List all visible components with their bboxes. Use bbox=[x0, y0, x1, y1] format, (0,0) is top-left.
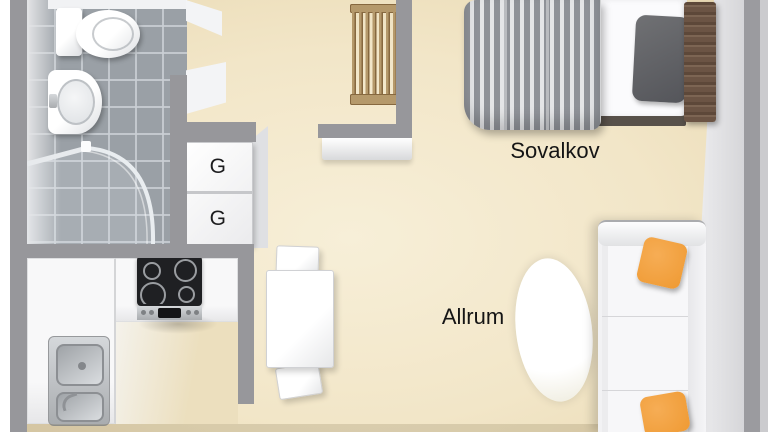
sink-drain bbox=[78, 362, 86, 370]
wardrobe-upper-label: G bbox=[210, 155, 227, 179]
alcove-wall-vertical bbox=[396, 0, 412, 138]
burner-top-right bbox=[174, 259, 197, 282]
sofa-cushion-bottom bbox=[639, 390, 691, 432]
sink-bowl-upper bbox=[56, 344, 104, 386]
kitchen-sink-unit bbox=[48, 336, 110, 426]
sofa-backrest bbox=[688, 244, 706, 432]
oven-front bbox=[137, 306, 202, 320]
bathroom-right-wall bbox=[170, 75, 187, 246]
sleeping-alcove-label: Sovalkov bbox=[495, 138, 615, 164]
sofa-seat-seam bbox=[602, 316, 688, 317]
cooktop bbox=[137, 256, 202, 306]
wardrobe-cabinets: G G bbox=[183, 142, 253, 246]
oven-display bbox=[158, 308, 181, 318]
wardrobe-top-wall bbox=[172, 122, 256, 142]
wardrobe-upper: G bbox=[184, 143, 252, 194]
floorplan-canvas: G G Sovalkov Allrum bbox=[0, 0, 768, 432]
slat-rack-bottom-rail bbox=[350, 94, 399, 105]
burner-bottom-right bbox=[178, 286, 195, 303]
burner-bottom-left bbox=[140, 282, 166, 308]
alcove-wall-horizontal bbox=[318, 124, 412, 138]
sofa bbox=[596, 220, 706, 432]
bed-headboard bbox=[684, 2, 716, 122]
oven-knob bbox=[186, 310, 191, 315]
wardrobe-lower-label: G bbox=[210, 207, 227, 231]
oven-knob bbox=[141, 310, 146, 315]
washbasin-bowl bbox=[57, 79, 95, 125]
washbasin-faucet bbox=[49, 94, 57, 108]
shower-enclosure bbox=[27, 140, 190, 246]
duvet-fold bbox=[504, 0, 507, 130]
hall-wall-shelf bbox=[322, 138, 412, 160]
burner-top-left bbox=[143, 262, 161, 280]
slat-rack-bars bbox=[352, 12, 397, 96]
duvet-fold bbox=[546, 0, 549, 130]
oven-knob bbox=[194, 310, 199, 315]
right-exterior-wall bbox=[744, 0, 760, 432]
living-room-label: Allrum bbox=[423, 304, 523, 330]
kitchen-hall-wall-stub bbox=[238, 258, 254, 404]
right-exterior-wall-edge bbox=[760, 0, 768, 432]
bed-striped-duvet bbox=[464, 0, 601, 130]
left-exterior-wall bbox=[10, 0, 27, 432]
dining-table bbox=[266, 270, 334, 368]
bed-pillow bbox=[632, 15, 690, 104]
wardrobe-lower: G bbox=[184, 194, 252, 244]
toilet-seat-ring bbox=[92, 17, 134, 51]
oven-knob bbox=[149, 310, 154, 315]
bathroom-kitchen-wall bbox=[10, 244, 254, 258]
